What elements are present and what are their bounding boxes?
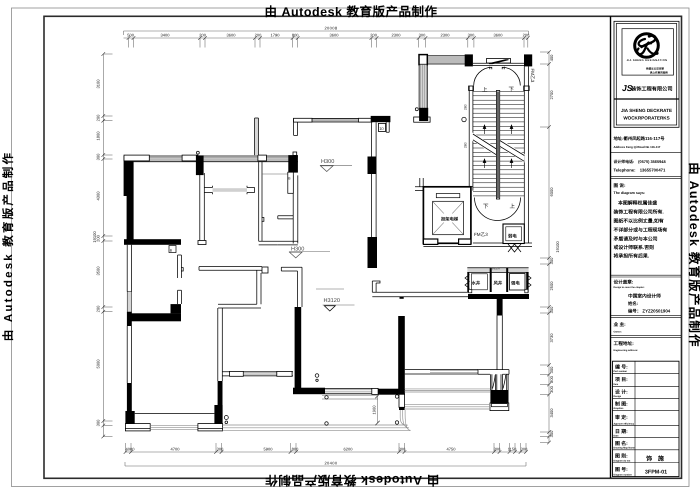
svg-text:或设计师联系.否则: 或设计师联系.否则 xyxy=(614,244,655,251)
svg-text:地址:衢州凤起路116-117号: 地址:衢州凤起路116-117号 xyxy=(614,136,666,141)
svg-text:300: 300 xyxy=(399,447,406,452)
svg-text:3600: 3600 xyxy=(227,33,237,38)
svg-text:图 说:: 图 说: xyxy=(614,183,626,188)
svg-text:设计盖章:: 设计盖章: xyxy=(614,279,634,285)
svg-text:3600: 3600 xyxy=(494,33,504,38)
svg-text:300: 300 xyxy=(217,447,224,452)
svg-text:Address Feng Qi Road No 116-11: Address Feng Qi Road No 116-117 xyxy=(614,145,661,149)
svg-text:300: 300 xyxy=(549,306,554,313)
svg-text:Graphics: Graphics xyxy=(614,407,625,410)
svg-text:H3120: H3120 xyxy=(324,298,340,304)
svg-text:Diagram do nat: Diagram do nat xyxy=(614,459,631,462)
svg-text:强电: 强电 xyxy=(511,281,520,286)
svg-text:图 名:: 图 名: xyxy=(615,440,628,447)
svg-text:800: 800 xyxy=(549,375,554,382)
svg-text:Drawing Map Name: Drawing Map Name xyxy=(614,447,636,450)
svg-text:水井: 水井 xyxy=(472,281,481,286)
svg-text:1790: 1790 xyxy=(271,33,281,38)
svg-text:6200: 6200 xyxy=(344,447,354,452)
svg-text:担架电梯: 担架电梯 xyxy=(441,217,459,222)
svg-text:由 Autodesk 教育版产品制作: 由 Autodesk 教育版产品制作 xyxy=(265,5,438,19)
svg-text:200: 200 xyxy=(96,305,101,312)
svg-text:4300: 4300 xyxy=(96,191,101,201)
svg-text:300: 300 xyxy=(549,385,554,392)
svg-text:饰 施: 饰 施 xyxy=(646,455,666,463)
svg-text:300: 300 xyxy=(521,447,528,452)
svg-text:项 目:: 项 目: xyxy=(615,377,628,383)
svg-text:真心实意的服务: 真心实意的服务 xyxy=(650,71,669,75)
svg-text:20008: 20008 xyxy=(324,25,337,30)
svg-text:业 主:: 业 主: xyxy=(614,321,627,327)
svg-text:制 图:: 制 图: xyxy=(615,401,628,408)
svg-text:1800: 1800 xyxy=(96,131,101,141)
svg-text:300: 300 xyxy=(549,430,554,437)
svg-text:编号： ZYZ20501904: 编号： ZYZ20501904 xyxy=(628,309,671,314)
svg-text:Item: Item xyxy=(614,383,619,386)
svg-text:3400: 3400 xyxy=(161,33,171,38)
svg-text:装饰工程有限公司: 装饰工程有限公司 xyxy=(630,86,673,93)
svg-text:Approve efficiency: Approve efficiency xyxy=(614,422,635,425)
svg-text:200: 200 xyxy=(370,33,377,38)
svg-text:19100: 19100 xyxy=(92,231,97,243)
svg-text:6000: 6000 xyxy=(549,187,554,197)
svg-text:审 定:: 审 定: xyxy=(615,414,628,421)
svg-text:Design to cover the chapter:: Design to cover the chapter: xyxy=(614,286,645,289)
svg-text:装饰工程有限公司所有.: 装饰工程有限公司所有. xyxy=(613,209,665,216)
svg-text:200: 200 xyxy=(199,33,206,38)
svg-text:300: 300 xyxy=(419,33,426,38)
svg-text:图 则:: 图 则: xyxy=(615,452,628,459)
svg-text:设 计:: 设 计: xyxy=(615,389,628,396)
svg-text:上: 上 xyxy=(510,203,516,210)
svg-text:Design: Design xyxy=(614,395,622,398)
svg-text:Owner:: Owner: xyxy=(614,331,622,334)
svg-text:姓名:: 姓名: xyxy=(627,301,639,306)
svg-text:300: 300 xyxy=(96,419,101,426)
svg-text:300: 300 xyxy=(468,33,475,38)
svg-text:编 号:: 编 号: xyxy=(615,364,628,371)
svg-text:200: 200 xyxy=(255,33,262,38)
svg-text:300: 300 xyxy=(549,366,554,373)
svg-text:工程地址:: 工程地址: xyxy=(614,340,635,346)
svg-text:1900: 1900 xyxy=(372,405,377,415)
svg-text:5900: 5900 xyxy=(264,447,274,452)
svg-text:1150: 1150 xyxy=(508,447,517,452)
svg-text:图纸不以比例丈量,如有: 图纸不以比例丈量,如有 xyxy=(614,218,664,225)
svg-text:Date: Date xyxy=(614,434,620,437)
svg-text:10: 10 xyxy=(379,126,384,131)
svg-text:2700: 2700 xyxy=(549,90,554,100)
svg-text:JIA SHENG DESIGNATION: JIA SHENG DESIGNATION xyxy=(627,59,668,62)
svg-text:200: 200 xyxy=(523,33,530,38)
svg-text:由 Autodesk 教育版产品制作: 由 Autodesk 教育版产品制作 xyxy=(1,151,15,341)
svg-text:强电管井: 强电管井 xyxy=(491,266,501,270)
svg-text:上: 上 xyxy=(482,87,488,94)
svg-text:3100: 3100 xyxy=(96,79,101,89)
svg-text:FM乙3: FM乙3 xyxy=(530,69,535,83)
svg-text:Diagram number: Diagram number xyxy=(614,473,632,476)
svg-text:下: 下 xyxy=(483,203,489,210)
svg-text:JIA SHENG DECKRATE: JIA SHENG DECKRATE xyxy=(621,108,672,113)
svg-text:4750: 4750 xyxy=(447,447,457,452)
svg-text:3600: 3600 xyxy=(330,33,340,38)
svg-text:280: 280 xyxy=(464,104,468,110)
svg-text:由 Autodesk 教育版产品制作: 由 Autodesk 教育版产品制作 xyxy=(265,473,440,487)
svg-text:800: 800 xyxy=(292,447,299,452)
svg-text:日 期:: 日 期: xyxy=(615,428,628,435)
svg-text:设计师电话: (0570) 3565948: 设计师电话: (0570) 3565948 xyxy=(614,159,667,164)
svg-text:280: 280 xyxy=(464,142,468,148)
svg-text:300: 300 xyxy=(494,447,501,452)
svg-text:FM乙3: FM乙3 xyxy=(474,232,488,237)
svg-text:400: 400 xyxy=(549,54,554,61)
svg-text:不详部分或与工程现场有: 不详部分或与工程现场有 xyxy=(614,227,668,234)
svg-text:图 号:: 图 号: xyxy=(615,466,628,473)
svg-text:300: 300 xyxy=(549,257,554,264)
svg-text:3FPM-01: 3FPM-01 xyxy=(645,470,667,476)
svg-text:Engineering address:: Engineering address: xyxy=(614,349,639,352)
svg-text:5000: 5000 xyxy=(96,359,101,369)
svg-text:3500: 3500 xyxy=(96,266,101,276)
svg-text:Telephone: 13655700471: Telephone: 13655700471 xyxy=(614,168,666,173)
svg-text:The diagram says:: The diagram says: xyxy=(614,191,646,195)
svg-text:弱电: 弱电 xyxy=(508,234,517,239)
svg-text:Part number: Part number xyxy=(614,370,628,373)
svg-text:3400: 3400 xyxy=(549,408,554,418)
svg-text:300: 300 xyxy=(96,153,101,160)
svg-text:4700: 4700 xyxy=(171,447,181,452)
svg-text:2300: 2300 xyxy=(441,33,451,38)
svg-text:WOCKRPORATERKS: WOCKRPORATERKS xyxy=(623,116,669,121)
svg-text:19100: 19100 xyxy=(555,241,560,253)
svg-text:中国室内设计师: 中国室内设计师 xyxy=(628,293,661,299)
svg-text:3730: 3730 xyxy=(549,333,554,343)
svg-text:矛盾请及时与本公司: 矛盾请及时与本公司 xyxy=(613,235,658,242)
svg-text:200: 200 xyxy=(96,114,101,121)
svg-text:将承担所有后果.: 将承担所有后果. xyxy=(614,253,650,260)
svg-text:2300: 2300 xyxy=(392,33,402,38)
svg-text:800: 800 xyxy=(292,33,299,38)
svg-text:由 Autodesk 教育版产品制作: 由 Autodesk 教育版产品制作 xyxy=(687,162,700,348)
svg-text:H300: H300 xyxy=(321,159,334,165)
svg-text:风井: 风井 xyxy=(494,281,503,286)
svg-text:2500: 2500 xyxy=(549,281,554,291)
svg-text:500: 500 xyxy=(127,33,134,38)
svg-text:本图解释权属佳盛: 本图解释权属佳盛 xyxy=(618,200,657,207)
svg-text:下: 下 xyxy=(509,86,515,93)
svg-text:4000: 4000 xyxy=(126,447,136,452)
svg-text:20400: 20400 xyxy=(324,460,337,465)
svg-text:佳盛以公益信誉: 佳盛以公益信誉 xyxy=(646,67,665,71)
